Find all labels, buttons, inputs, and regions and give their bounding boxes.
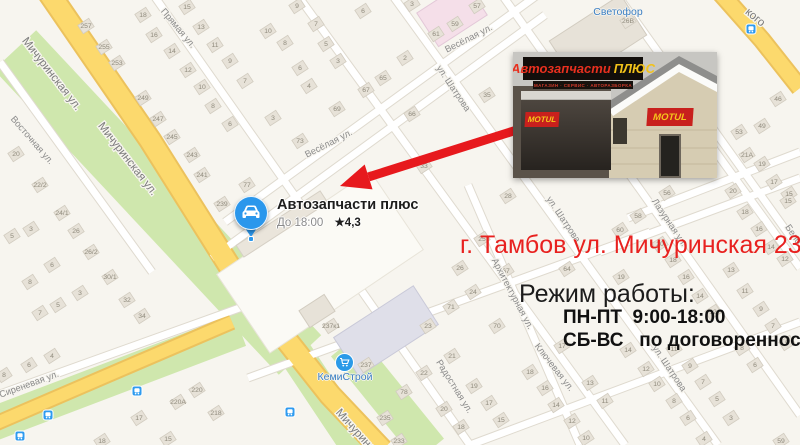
car-icon	[240, 202, 262, 224]
poi-svetofor[interactable]: Светофор	[573, 6, 663, 18]
ad-banner: MOTUL	[521, 100, 611, 170]
marker-label[interactable]: Автозапчасти плюс До 18:00 ★4,3	[277, 197, 418, 230]
shopping-cart-icon[interactable]	[335, 353, 354, 372]
motul-logo: MOTUL	[524, 112, 559, 127]
schedule-title: Режим работы:	[519, 280, 695, 309]
address-caption: г. Тамбов ул. Мичуринская 237г.	[460, 231, 800, 260]
marker-location-dot	[248, 236, 254, 242]
marker-title: Автозапчасти плюс	[277, 197, 418, 214]
sign-subtitle: МАГАЗИН · СЕРВИС · АВТОРАЗБОРКА	[533, 81, 633, 89]
sign-name-suffix: ПЛЮС	[614, 61, 655, 76]
sign-name: Автозапчасти	[513, 61, 611, 76]
marker-hours: До 18:00	[277, 217, 323, 229]
poi-kemistroy[interactable]: КемиСтрой	[300, 371, 390, 383]
banner-header	[521, 91, 611, 100]
marker-rating: ★4,3	[335, 217, 361, 229]
schedule-weekdays: ПН-ПТ 9:00-18:00	[563, 307, 725, 329]
schedule-weekend: СБ-ВС по договоренности	[563, 330, 800, 352]
marker-pin[interactable]	[234, 196, 268, 230]
storefront-photo: Автозапчасти ПЛЮС МАГАЗИН · СЕРВИС · АВТ…	[513, 52, 717, 178]
map-screenshot: 257255253249247245243241239772022/224/11…	[0, 0, 800, 445]
motul-sign-wall: MOTUL	[646, 108, 693, 126]
store-sign: Автозапчасти ПЛЮС	[523, 57, 643, 80]
store-door	[659, 134, 681, 178]
car-image	[535, 174, 611, 178]
